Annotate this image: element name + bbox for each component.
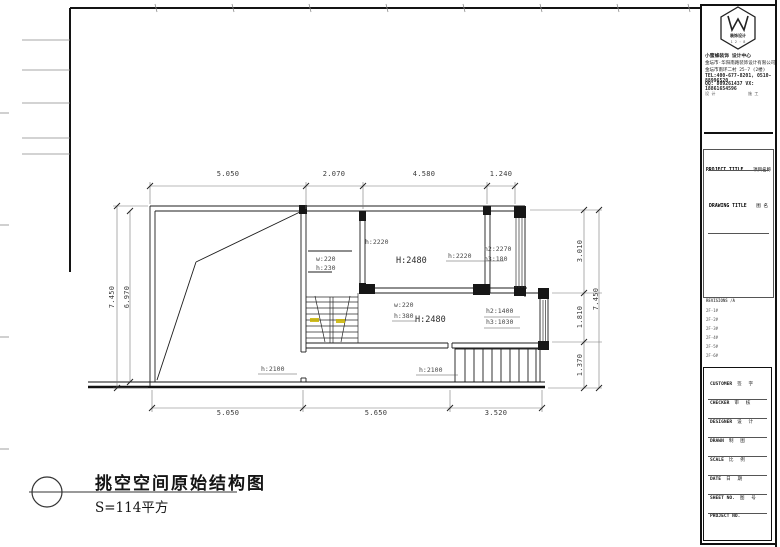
floorplan-linework [0,0,780,547]
field-value: 比 例 [729,457,747,463]
field-label: DESIGNER [710,420,732,425]
dim-bottom-1: 5.050 [217,409,240,417]
label-door-mid: h:2100 [419,366,442,374]
sheet-frame [70,8,700,272]
field-label: PROJECT NO. [710,514,740,519]
dim-right-outer: 7.450 [592,288,600,311]
label-bay-h3: h3:1030 [486,318,513,326]
revision-row: 2F-2# [706,317,718,322]
stairs-exterior [455,349,540,382]
dim-bottom-3: 3.520 [485,409,508,417]
ground-line [88,382,545,387]
fields-box: CUSTOMER 签 字 CHECKER 审 核 DESIGNER 设 计 DR… [703,367,772,541]
company-name: 小蜜蜂装饰 设计中心 [705,52,751,59]
company-qq-vx: QQ: 809261437 VX: 18861654596 [705,82,780,92]
stair-note-highlight [310,318,345,323]
drawing-title-value: 图 名 [756,204,768,209]
company-line2: 金坛市·华阳南路装饰设计有限公司 [705,60,775,66]
drawing-caption-area: S=114平方 [95,496,168,516]
title-box: PROJECT TITLE 项目名称 DRAWING TITLE 图 名 [703,149,774,298]
field-value: 审 核 [734,400,752,406]
logo-sub: 1 2 · 8 [712,40,764,44]
field-row-scale: SCALE 比 例 [708,457,767,476]
field-label: DRAWN [710,439,724,444]
revision-row: 2F-6# [706,353,718,358]
void-diagonals [157,212,300,380]
drawing-sheet: 5.050 2.070 4.580 1.240 5.050 5.650 3.52… [0,0,780,547]
revision-row: 2F-3# [706,326,718,331]
field-value: 设 计 [737,419,755,425]
label-leaders [258,261,520,375]
field-row-drawn: DRAWN 制 图 [708,438,767,457]
dim-bottom-2: 5.650 [365,409,388,417]
label-lower-width: w:220 [394,301,414,309]
dim-top-4: 1.240 [490,170,513,178]
field-label: CHECKER [710,401,729,406]
label-door-left: h:2100 [261,365,284,373]
label-hall-ceiling: H:2480 [396,256,427,266]
label-rightroom-h2: h2:2270 [484,245,511,253]
drawing-title-label: DRAWING TITLE [709,204,747,209]
dim-left-outer: 7.450 [108,286,116,309]
label-midroom-height: h:230 [316,264,336,272]
revision-row: 2F-5# [706,344,718,349]
logo-name: 装饰设计 [712,33,764,39]
dim-top-2: 2.070 [323,170,346,178]
field-value: 签 字 [737,381,755,387]
field-row-date: DATE 日 期 [708,476,767,495]
drawing-caption-title: 挑空空间原始结构图 [95,469,266,494]
field-value: 图 号 [740,495,758,501]
field-label: SCALE [710,458,724,463]
dim-left-inner: 6.970 [123,286,131,309]
label-rightroom-h3: h3:180 [484,255,507,263]
dim-top-3: 4.580 [413,170,436,178]
label-hall-h-right: h:2220 [448,252,471,260]
label-lower-h: h:380 [394,312,414,320]
label-lower-ceiling: H:2480 [415,315,446,325]
dim-right-1: 3.010 [576,240,584,263]
revision-row: 2F-1# [706,308,718,313]
field-label: DATE [710,477,721,482]
company-address: 金坛市南环二村 25-7 (2楼) [705,67,765,73]
field-row-customer: CUSTOMER 签 字 [708,381,767,400]
label-bay-h2: h2:1400 [486,307,513,315]
label-hall-h-left: h:2220 [365,238,388,246]
field-row-checker: CHECKER 审 核 [708,400,767,419]
field-label: CUSTOMER [710,382,732,387]
field-value: 日 期 [726,476,744,482]
company-logo-icon [710,4,766,54]
field-row-designer: DESIGNER 设 计 [708,419,767,438]
field-row-sheet-no: SHEET NO. 图 号 [708,495,767,514]
walls [150,206,548,387]
field-label: SHEET NO. [710,496,735,501]
field-value: 制 图 [729,438,747,444]
window-hatch [516,218,548,341]
dim-top-1: 5.050 [217,170,240,178]
company-foot-left: 设 计 [705,91,715,97]
panel-left-border [700,4,702,543]
revision-row: REVISIONS /A [706,298,735,303]
revision-row: 2F-4# [706,335,718,340]
title-box-rule-1 [708,170,769,171]
company-foot-right: 施 工 [748,91,758,97]
dim-right-2: 1.810 [576,306,584,329]
panel-divider [704,132,773,134]
panel-bottom-border [700,543,777,545]
title-box-rule-2 [708,233,769,234]
dim-right-3: 1.370 [576,354,584,377]
field-row-project-no: PROJECT NO. [708,514,767,533]
label-midroom-width: w:220 [316,255,336,263]
